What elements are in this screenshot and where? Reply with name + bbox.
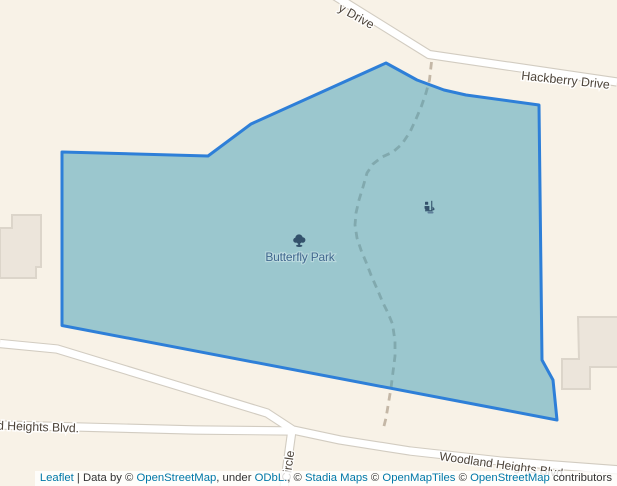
svg-text:Butterfly Park: Butterfly Park: [265, 250, 335, 264]
svg-text:d Heights Blvd.: d Heights Blvd.: [0, 419, 79, 436]
